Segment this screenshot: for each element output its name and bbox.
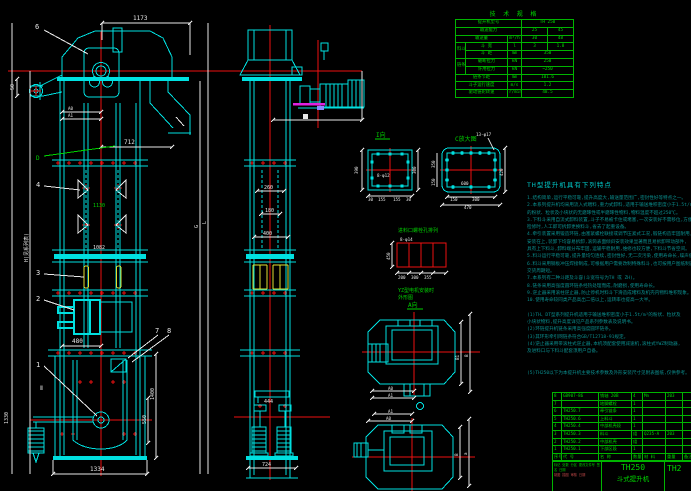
spec-cell: 25: [522, 27, 548, 35]
spec-cell: 链条: [456, 58, 466, 74]
dim-label: 444: [264, 399, 273, 405]
balloon-3: 3: [36, 269, 40, 277]
detail-hole-grid: 进料口螺栓孔排列 8-φ14 450 200 300 355: [386, 227, 448, 280]
spec-table: 技 术 规 格 提升机型号TH 250 输送能力2545 输送量m³/h3048…: [455, 9, 573, 98]
balloon-1: 1: [36, 361, 40, 369]
dim-label: B: [454, 453, 459, 456]
dim-label: A1: [388, 409, 394, 414]
dim-label: L: [202, 221, 208, 224]
drawing-number-partial: TH2: [667, 464, 681, 473]
title-block-revision-area: 标记 处数 分区 更改文件号 签名 日期 制图 描图 审核 日期: [553, 462, 602, 491]
dim-label: a: [463, 452, 468, 455]
spec-cell: r/min: [508, 90, 522, 98]
spec-cell: 斗子运行速度: [456, 82, 508, 90]
dim-label: 200: [398, 275, 406, 280]
section-mark: Ⅱ: [40, 385, 43, 392]
dim-label: 480: [72, 338, 83, 345]
dim-label: 155: [378, 197, 386, 202]
dim-label: 470: [464, 205, 472, 210]
spec-table-title: 技 术 规 格: [455, 9, 573, 18]
revision-row: 标记 处数 分区 更改文件号 签名 日期: [554, 463, 600, 473]
dim-label: A1: [68, 113, 74, 118]
spec-cell: 破断拉力: [466, 58, 508, 66]
spec-cell: 料斗: [456, 43, 466, 59]
balloon-6: 6: [35, 23, 39, 31]
spec-cell: 3: [522, 43, 548, 51]
dim-label: 712: [124, 139, 135, 146]
spec-cell: 45: [548, 27, 574, 35]
dim-label: 30: [406, 197, 412, 202]
notes-lines: 1.结构简单,运行平稳可靠,提升高度大,输送量范围广,密封性好等特点之一。2.本…: [527, 195, 691, 377]
plan-view-top: YZ型电机安装时 外形图 A向 B1 B A0 A1: [368, 287, 472, 410]
detail-view-c: C放大图 13-φ17 600 150 300 470 420 350 150: [431, 132, 507, 210]
dim-label: 450: [386, 252, 391, 260]
bom-rows: 8GB907-86销轴 20B4Mn2037地脚螺栓16TH250.7牵引链条1…: [553, 393, 691, 454]
balloon-7: 7: [155, 327, 159, 335]
balloon-8: 8: [167, 327, 171, 335]
dim-label: 150: [450, 197, 458, 202]
dim-label: 155: [393, 197, 401, 202]
spec-cell: 350: [522, 51, 574, 59]
dim-label: 300: [472, 197, 480, 202]
plan-note: YZ型电机安装时: [398, 287, 434, 294]
front-view: [28, 28, 191, 462]
dim-label: 1330: [4, 412, 10, 424]
balloon-4: 4: [36, 181, 40, 189]
dim-label: 1400: [150, 388, 156, 400]
dim-label: 150: [431, 178, 436, 186]
head-platform-band: [57, 77, 189, 81]
spec-cell: 48.5: [522, 90, 574, 98]
dim-label: G: [194, 225, 200, 228]
spec-cell: l: [508, 43, 522, 51]
dim-label: 550: [142, 415, 148, 424]
signature-row: 制图 描图 审核 日期: [554, 473, 600, 478]
spec-cell: mm: [508, 74, 522, 82]
hole-callout: 8-φ12: [377, 173, 390, 178]
title-block-center: TH250 斗式提升机: [602, 462, 665, 491]
bom-footer: 序号代 号名 称数量材 料重量备注: [553, 453, 691, 461]
dim-label: 50: [10, 84, 16, 90]
side-view: 260 180 400 444 724: [240, 30, 364, 478]
spec-cell: 48: [548, 35, 574, 43]
dim-label: A0: [386, 416, 392, 421]
detail-title: C放大图: [455, 135, 477, 143]
dim-label: 400: [263, 231, 272, 237]
spec-cell: TH 250: [522, 20, 574, 28]
motor-plan: [368, 344, 388, 362]
plan-title: A向: [408, 301, 418, 309]
dim-label-green: 1130: [93, 203, 105, 209]
dim-label: 300: [412, 166, 417, 174]
detail-title: I向: [376, 131, 386, 139]
spec-cell: 驱动链轮转速: [456, 90, 508, 98]
dim-label: A0: [388, 386, 394, 391]
drawing-name: 斗式提升机: [602, 474, 664, 484]
dim-label: B: [464, 354, 469, 357]
spec-cell: mm: [508, 51, 522, 59]
dim-label: 1173: [133, 15, 148, 22]
dim-label: B1: [455, 354, 460, 360]
balloon-2: 2: [36, 295, 40, 303]
dim-marker: [303, 114, 308, 119]
dim-label: 260: [264, 185, 273, 191]
spec-cell: ~250: [522, 66, 574, 74]
spec-cell: 输送能力: [456, 27, 522, 35]
spec-cell: kN: [508, 58, 522, 66]
spec-cell: 链条节距: [456, 74, 508, 82]
bom-table: 8GB907-86销轴 20B4Mn2037地脚螺栓16TH250.7牵引链条1…: [552, 392, 691, 461]
base-plate: [53, 456, 147, 460]
drawing-model: TH250: [602, 462, 664, 474]
dim-label: 390: [354, 166, 359, 174]
dim-label: 724: [262, 462, 271, 468]
feed-inlet: [74, 300, 100, 334]
highlight-dot: [317, 106, 324, 110]
spec-cell: 101.6: [522, 74, 574, 82]
dim-label: 300: [411, 275, 419, 280]
dim-label: 180: [265, 208, 274, 214]
spec-cell: 1.2: [522, 82, 574, 90]
balloon-D: D: [36, 155, 40, 162]
spec-cell: 1.8: [548, 43, 574, 51]
dim-label: 350: [431, 160, 436, 168]
spec-cell: 提升机型号: [456, 20, 522, 28]
reducer: [300, 86, 310, 104]
title-block-right: TH2: [665, 462, 691, 491]
spec-cell: 斗 距: [466, 51, 508, 59]
detail-title: 进料口螺栓孔排列: [398, 227, 438, 234]
spec-cell: 30: [522, 35, 548, 43]
dim-label: H(见系列表): [23, 233, 30, 262]
dim-label: 30: [368, 197, 374, 202]
spec-cell: 250: [522, 58, 574, 66]
dim-label: 1082: [93, 245, 105, 251]
section-symbol: [417, 403, 424, 410]
hole-callout: 13-φ17: [476, 132, 492, 137]
dim-label: 420: [499, 168, 504, 176]
dim-label: A1: [388, 393, 394, 398]
spec-cell: kN: [508, 66, 522, 74]
dim-label: 600: [461, 181, 469, 186]
cad-sheet: 1173 712 480 1334 1400 550 1330 H(见系列表) …: [0, 0, 691, 491]
plan-note: 外形图: [398, 294, 413, 301]
spec-cell: m³/h: [508, 35, 522, 43]
spec-cell: 许用拉力: [466, 66, 508, 74]
detail-view-i: I向 8-φ12 390 300 30 155 155 30: [354, 131, 420, 202]
dim-label: 355: [424, 275, 432, 280]
notes-heading: TH型提升机具有下列特点: [527, 179, 691, 189]
hole-callout: 8-φ14: [400, 237, 413, 242]
spec-cell: m/s: [508, 82, 522, 90]
spec-cell: 输送量: [456, 35, 508, 43]
spec-cell: 斗 宽: [466, 43, 508, 51]
dim-label: A0: [68, 106, 74, 111]
dim-label: 1334: [90, 466, 105, 473]
mid-flange-band: [54, 254, 146, 259]
title-block: 标记 处数 分区 更改文件号 签名 日期 制图 描图 审核 日期 TH250 斗…: [552, 461, 691, 491]
tension-platform: [255, 391, 289, 397]
notes-block: TH型提升机具有下列特点 1.结构简单,运行平稳可靠,提升高度大,输送量范围广,…: [527, 179, 691, 394]
